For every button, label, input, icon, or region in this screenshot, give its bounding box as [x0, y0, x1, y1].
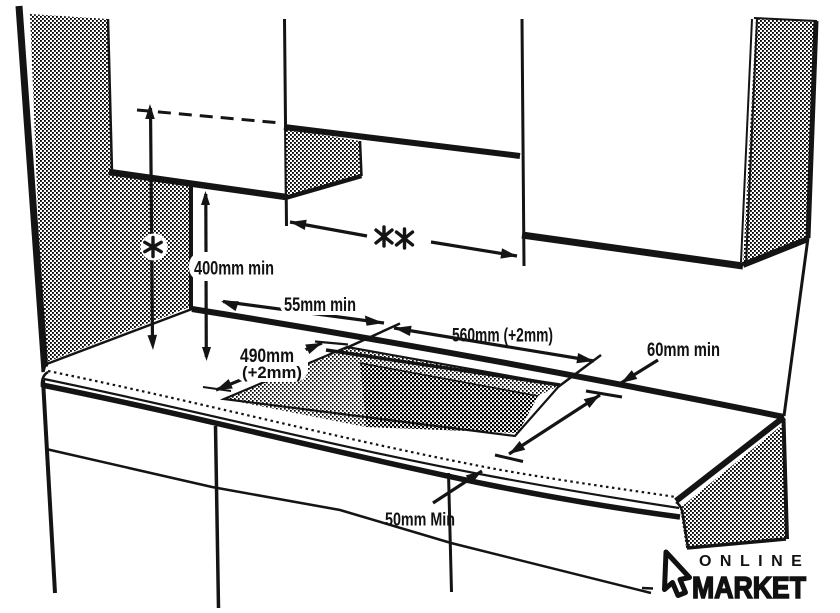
- svg-text:ONLINE: ONLINE: [699, 553, 807, 570]
- svg-text:400mm min: 400mm min: [194, 259, 274, 280]
- svg-text:560mm (+2mm): 560mm (+2mm): [452, 326, 553, 347]
- svg-text:MARKET: MARKET: [692, 570, 806, 605]
- svg-text:55mm min: 55mm min: [284, 295, 356, 316]
- svg-text:60mm min: 60mm min: [647, 340, 720, 361]
- svg-text:(+2mm): (+2mm): [242, 363, 302, 382]
- svg-text:50mm Min: 50mm Min: [385, 510, 455, 530]
